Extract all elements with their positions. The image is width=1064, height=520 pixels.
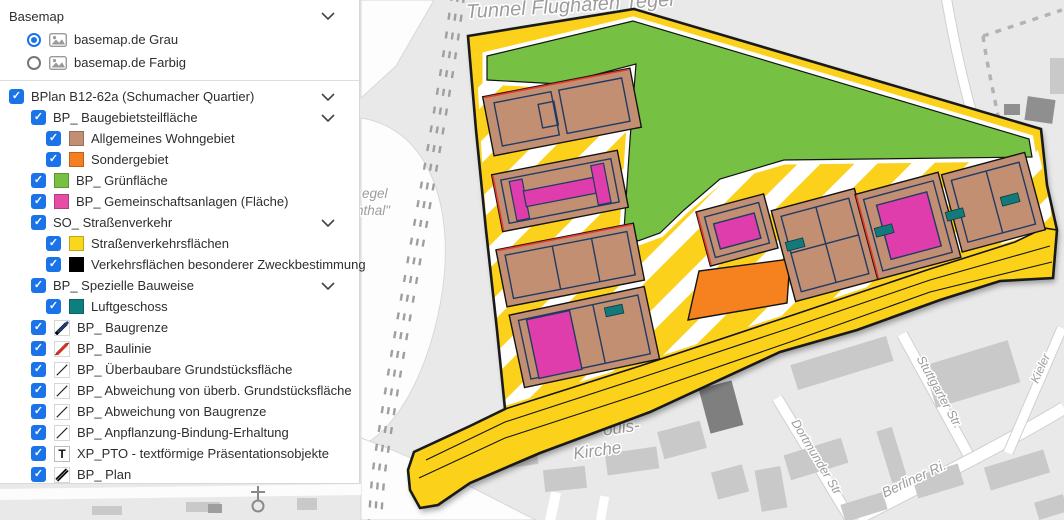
layer-label: Verkehrsflächen besonderer Zweckbestimmu… [91,257,366,272]
checkbox-checked[interactable] [31,215,46,230]
checkbox-checked[interactable] [31,362,46,377]
text-symbol-icon: T [54,446,70,462]
layer-label: BP_ Abweichung von überb. Grundstücksflä… [77,383,352,398]
layer-row-baulinie[interactable]: BP_ Baulinie [0,338,359,359]
chevron-down-icon[interactable] [321,93,335,102]
basemap-option-farbig[interactable]: basemap.de Farbig [0,51,359,74]
building [1024,96,1055,124]
checkbox-checked[interactable] [31,278,46,293]
color-swatch [54,173,69,188]
layer-row-spezielle-bauweise[interactable]: BP_ Spezielle Bauweise [0,275,359,296]
building [208,504,222,513]
layer-label: Straßenverkehrsflächen [91,236,229,251]
layer-label: BP_ Baugrenze [77,320,168,335]
line-symbol-baugrenze-icon [54,320,70,336]
checkbox-checked[interactable] [31,173,46,188]
basemap-option-label: basemap.de Grau [74,32,178,47]
layer-label: BP_ Spezielle Bauweise [53,278,194,293]
line-symbol-thin-icon [54,425,70,441]
chevron-down-icon[interactable] [321,12,335,21]
layer-label: BP_ Gemeinschaftsanlagen (Fläche) [76,194,288,209]
layer-label: BP_ Überbaubare Grundstücksfläche [77,362,292,377]
layer-row-ueberbaubare-grundstuecksflaeche[interactable]: BP_ Überbaubare Grundstücksfläche [0,359,359,380]
color-swatch [69,131,84,146]
checkbox-checked[interactable] [46,152,61,167]
layer-label: BP_ Baugebietsteilfläche [53,110,198,125]
checkbox-checked[interactable] [46,299,61,314]
radio-unselected[interactable] [27,56,41,70]
layer-row-strassenverkehrsflaechen[interactable]: Straßenverkehrsflächen [0,233,359,254]
color-swatch [69,152,84,167]
basemap-option-grau[interactable]: basemap.de Grau [0,28,359,51]
panel-divider [0,80,359,81]
checkbox-checked[interactable] [31,110,46,125]
building [1004,104,1020,115]
line-symbol-thin-icon [54,404,70,420]
chevron-down-icon[interactable] [321,219,335,228]
layer-panel: Basemap basemap.de Grau basemap.de Farbi… [0,0,360,484]
layer-row-abweichung-ueberb[interactable]: BP_ Abweichung von überb. Grundstücksflä… [0,380,359,401]
layer-row-strassenverkehr[interactable]: SO_ Straßenverkehr [0,212,359,233]
checkbox-checked[interactable] [31,341,46,356]
checkbox-checked[interactable] [9,89,24,104]
radio-selected[interactable] [27,33,41,47]
chevron-down-icon[interactable] [321,282,335,291]
layer-row-sondergebiet[interactable]: Sondergebiet [0,149,359,170]
layer-row-verkehrsflaechen-zweckbestimmung[interactable]: Verkehrsflächen besonderer Zweckbestimmu… [0,254,359,275]
gis-viewer: Tunnel Flughafen Tegel egel nthal" ouis-… [0,0,1064,520]
layer-row-wohngebiet[interactable]: Allgemeines Wohngebiet [0,128,359,149]
checkbox-checked[interactable] [31,383,46,398]
checkbox-checked[interactable] [31,320,46,335]
layer-label: Luftgeschoss [91,299,168,314]
checkbox-checked[interactable] [46,236,61,251]
layer-label: BP_ Anpflanzung-Bindung-Erhaltung [77,425,289,440]
basemap-option-label: basemap.de Farbig [74,55,186,70]
layer-label: SO_ Straßenverkehr [53,215,172,230]
chevron-down-icon[interactable] [321,114,335,123]
layer-row-gemeinschaftsanlagen[interactable]: BP_ Gemeinschaftsanlagen (Fläche) [0,191,359,212]
layer-row-baugebietsteilflaeche[interactable]: BP_ Baugebietsteilfläche [0,107,359,128]
layer-label: BPlan B12-62a (Schumacher Quartier) [31,89,254,104]
basemap-section-header[interactable]: Basemap [0,5,359,28]
layer-label: BP_ Abweichung von Baugrenze [77,404,266,419]
layer-row-xp-pto[interactable]: T XP_PTO - textförmige Präsentationsobje… [0,443,359,464]
line-symbol-baulinie-icon [54,341,70,357]
image-icon [49,56,67,70]
layer-label: BP_ Grünfläche [76,173,168,188]
map-label-fragment1: egel [362,186,389,201]
line-symbol-plan-icon [54,467,70,483]
layer-row-luftgeschoss[interactable]: Luftgeschoss [0,296,359,317]
checkbox-checked[interactable] [31,425,46,440]
color-swatch [54,194,69,209]
layer-row-gruenflaeche[interactable]: BP_ Grünfläche [0,170,359,191]
color-swatch [69,257,84,272]
layer-label: Sondergebiet [91,152,168,167]
layer-row-baugrenze[interactable]: BP_ Baugrenze [0,317,359,338]
image-icon [49,33,67,47]
layer-label: XP_PTO - textförmige Präsentationsobjekt… [77,446,329,461]
layer-label: BP_ Baulinie [77,341,151,356]
layer-label: Allgemeines Wohngebiet [91,131,235,146]
layer-row-bplan[interactable]: BPlan B12-62a (Schumacher Quartier) [0,86,359,107]
layer-row-abweichung-baugrenze[interactable]: BP_ Abweichung von Baugrenze [0,401,359,422]
checkbox-checked[interactable] [31,467,46,482]
basemap-section-title: Basemap [9,9,64,24]
map-label-fragment2: nthal" [356,203,391,218]
checkbox-checked[interactable] [31,194,46,209]
layer-row-bp-plan[interactable]: BP_ Plan [0,464,359,485]
line-symbol-thin-icon [54,362,70,378]
checkbox-checked[interactable] [46,131,61,146]
color-swatch [69,236,84,251]
checkbox-checked[interactable] [31,446,46,461]
checkbox-checked[interactable] [31,404,46,419]
layer-row-anpflanzung[interactable]: BP_ Anpflanzung-Bindung-Erhaltung [0,422,359,443]
layer-label: BP_ Plan [77,467,131,482]
line-symbol-thin-icon [54,383,70,399]
color-swatch [69,299,84,314]
checkbox-checked[interactable] [46,257,61,272]
